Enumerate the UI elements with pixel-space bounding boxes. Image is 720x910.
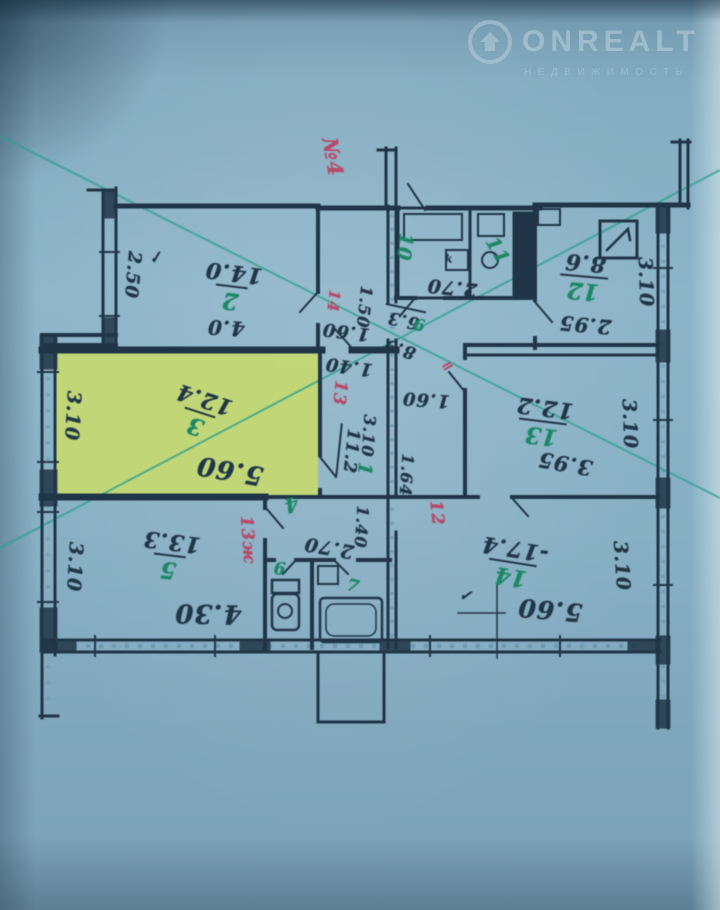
plan-label-dim-8-9: 8.9 bbox=[382, 335, 418, 361]
room-number: 12 bbox=[558, 273, 608, 304]
plan-label-dim-2-50: 2.50 bbox=[121, 250, 143, 299]
plan-label-dim-3-10-r14: 3.10 bbox=[610, 540, 632, 591]
plan-label-dim-4-30: 4.30 bbox=[174, 599, 242, 626]
plan-label-num-9: 9 bbox=[412, 315, 427, 333]
plan-label-check-room2: ✓ bbox=[148, 249, 165, 267]
plan-label-check-room14: ✓ bbox=[458, 588, 474, 605]
room-area: 8.6 bbox=[564, 250, 607, 278]
plan-label-red-apt-4: №4 bbox=[319, 136, 347, 178]
room-label-room-12: 128.6 bbox=[558, 250, 610, 305]
room-label-room-13: 1312.2 bbox=[511, 393, 574, 451]
room-label-room-5: 513.3 bbox=[138, 527, 201, 585]
plan-label-dim-4-0: 4.0 bbox=[207, 317, 246, 339]
plan-label-dim-3-95: 3.95 bbox=[536, 449, 594, 479]
room-number: 5 bbox=[151, 553, 186, 584]
plan-label-num-10: 10 bbox=[393, 232, 415, 262]
room-area: 14.0 bbox=[204, 258, 264, 289]
plan-label-num-7: 7 bbox=[345, 577, 362, 597]
plan-label-red-12: 12 bbox=[426, 499, 446, 526]
plan-label-dim-3-10-r3: 3.10 bbox=[61, 390, 83, 441]
plan-label-red-mark: = bbox=[438, 356, 457, 376]
room-number: 2 bbox=[213, 284, 248, 315]
room-label-room-2: 214.0 bbox=[200, 258, 263, 316]
plan-label-dim-5-60-r3: 5.60 bbox=[195, 451, 266, 488]
plan-label-dim-1-60-b: 1.60 bbox=[402, 388, 451, 409]
plan-label-dim-3-10-r5: 3.10 bbox=[63, 541, 85, 592]
plan-label-dim-5-60-r14: 5.60 bbox=[517, 595, 584, 626]
plan-label-num-4: 4 bbox=[281, 493, 301, 516]
plan-label-num-11: 11 bbox=[482, 234, 513, 268]
plan-label-red-13zh: 13ж bbox=[237, 515, 257, 565]
room-label-room-3: 312.4 bbox=[165, 380, 236, 446]
plan-label-dim-2-70-bot: 2.70 bbox=[303, 533, 356, 560]
plan-label-red-14: 14 bbox=[324, 289, 341, 313]
plan-label-red-13: 13 bbox=[329, 379, 349, 406]
plan-label-vent-k: k bbox=[445, 254, 454, 265]
plan-label-num-6: 6 bbox=[273, 561, 287, 579]
plan-label-dim-1-64: 1.64 bbox=[397, 453, 416, 497]
plan-labels-layer: 2.504.05.603.104.303.105.603.103.953.102… bbox=[0, 0, 720, 910]
plan-label-dim-1-40-a: 1.40 bbox=[324, 354, 374, 378]
plan-label-dim-1-40-b: 1.40 bbox=[352, 505, 371, 549]
plan-label-dim-3-10-r13: 3.10 bbox=[619, 399, 640, 450]
room-label-room-14: 14-17.4 bbox=[476, 533, 551, 594]
plan-label-dim-3-10-r12: 3.10 bbox=[635, 257, 656, 308]
plan-label-dim-2-95: 2.95 bbox=[558, 313, 612, 338]
floor-plan: 2.504.05.603.104.303.105.603.103.953.102… bbox=[0, 0, 720, 910]
plan-label-dim-1-60-a: 1.60 bbox=[321, 319, 371, 343]
floor-plan-photo: ONREALT НЕДВИЖИМОСТЬ bbox=[0, 0, 720, 910]
plan-label-num-1: 1 bbox=[354, 461, 374, 477]
room-area: 13.3 bbox=[142, 527, 202, 558]
plan-label-dim-2-70-top: 2.70 bbox=[426, 275, 478, 299]
